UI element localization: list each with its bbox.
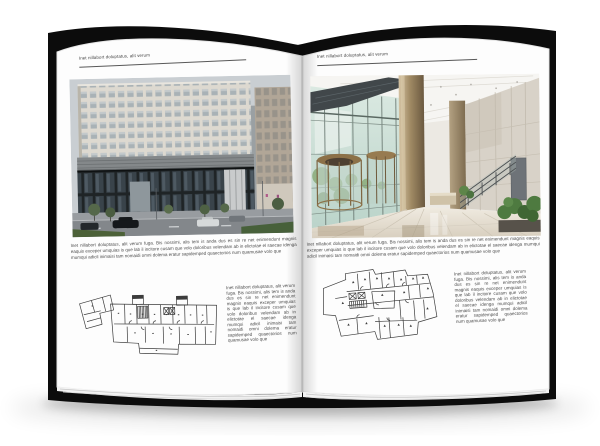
building-exterior-photo <box>69 75 293 238</box>
building-photo-graphic <box>69 75 293 238</box>
left-intro-paragraph: Inet nillabort doluptatus, alit verum fu… <box>70 235 297 278</box>
plan-walls <box>320 265 438 344</box>
main-building <box>76 81 256 217</box>
right-plan-side-text: Inet nillabort doluptatus, alit verum fu… <box>454 269 530 377</box>
left-floor-plan <box>76 278 224 364</box>
book-mockup-scene: Inet nillabort doluptatus, alit verum <box>0 0 600 446</box>
floor-plan-drawing <box>76 278 224 364</box>
bench <box>430 193 456 205</box>
plan-walls <box>79 292 218 357</box>
lobby-interior-photo <box>310 74 541 238</box>
revolving-doors <box>317 151 397 210</box>
plan-markers <box>91 293 212 352</box>
right-floor-plan <box>314 262 448 352</box>
right-side-text: Inet nillabort doluptatus, alit verum fu… <box>454 269 528 324</box>
floor-plan-drawing <box>314 262 448 352</box>
left-plan-side-text: Inet nillabort doluptatus, alit verum fu… <box>226 283 299 401</box>
left-side-text: Inet nillabort doluptatus, alit verum fu… <box>226 283 297 343</box>
lobby-photo-graphic <box>310 74 541 238</box>
background-buildings <box>248 87 293 213</box>
